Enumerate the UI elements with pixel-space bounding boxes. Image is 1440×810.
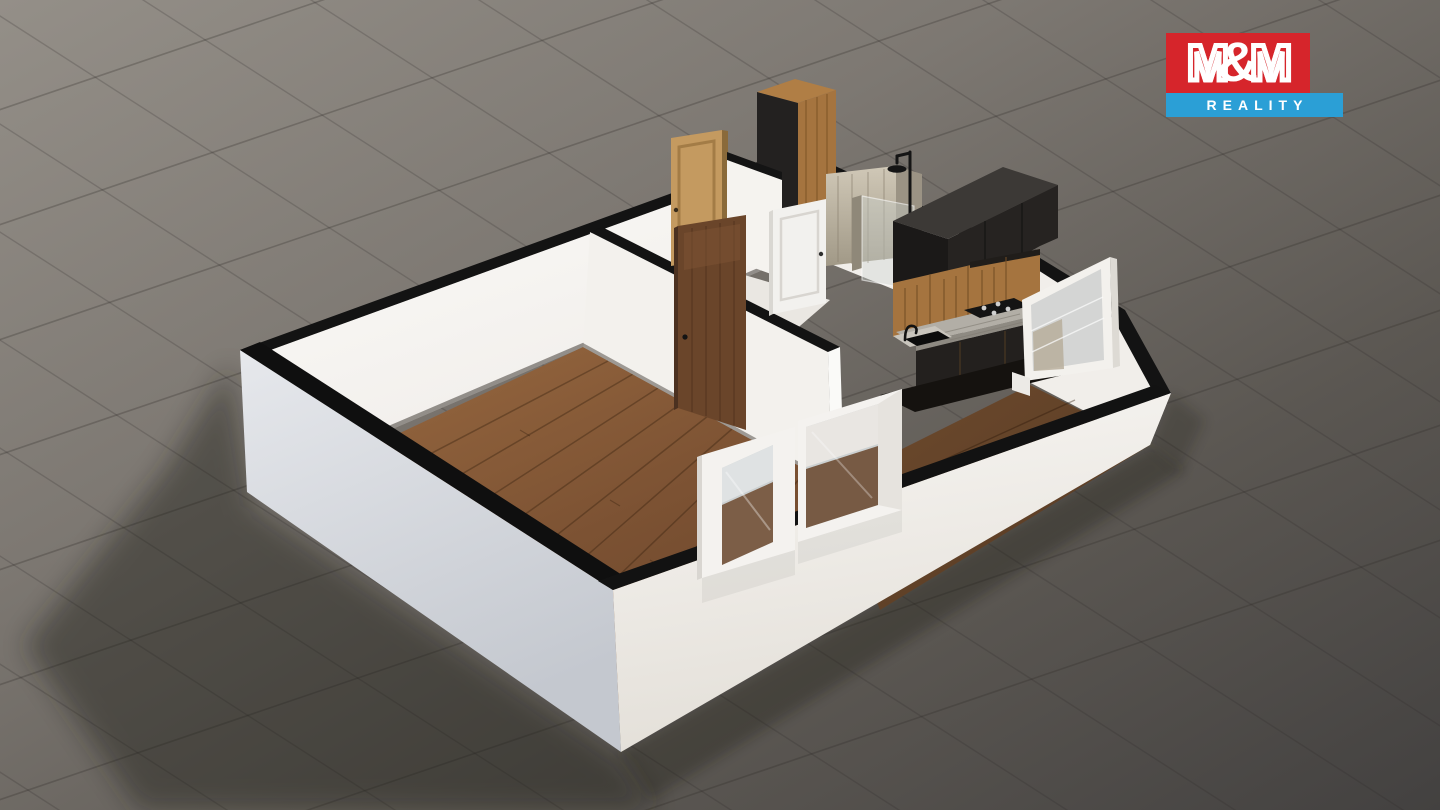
- logo-reality-blue-box: REALITY: [1166, 93, 1343, 117]
- front-window-right-stile: [878, 389, 902, 510]
- mm-reality-logo: M & M REALITY: [1166, 33, 1344, 117]
- logo-mm-red-box: M & M: [1166, 33, 1310, 93]
- logo-subtitle: REALITY: [1201, 97, 1309, 113]
- bathroom-door-handle: [819, 252, 823, 256]
- living-room-door-handle: [682, 334, 687, 339]
- bathroom-door-edge: [769, 210, 773, 316]
- entry-door-handle: [674, 208, 678, 212]
- logo-ampersand: &: [1218, 34, 1258, 90]
- front-window-left-reveal: [697, 455, 702, 580]
- living-room-door: [674, 215, 746, 430]
- bathroom-door: [769, 199, 826, 316]
- floorplan-3d-scene: [0, 0, 1440, 810]
- render-canvas: M & M REALITY: [0, 0, 1440, 810]
- living-room-door-edge: [674, 226, 678, 410]
- shower-divider: [852, 195, 862, 271]
- shower-head-disc: [888, 165, 907, 173]
